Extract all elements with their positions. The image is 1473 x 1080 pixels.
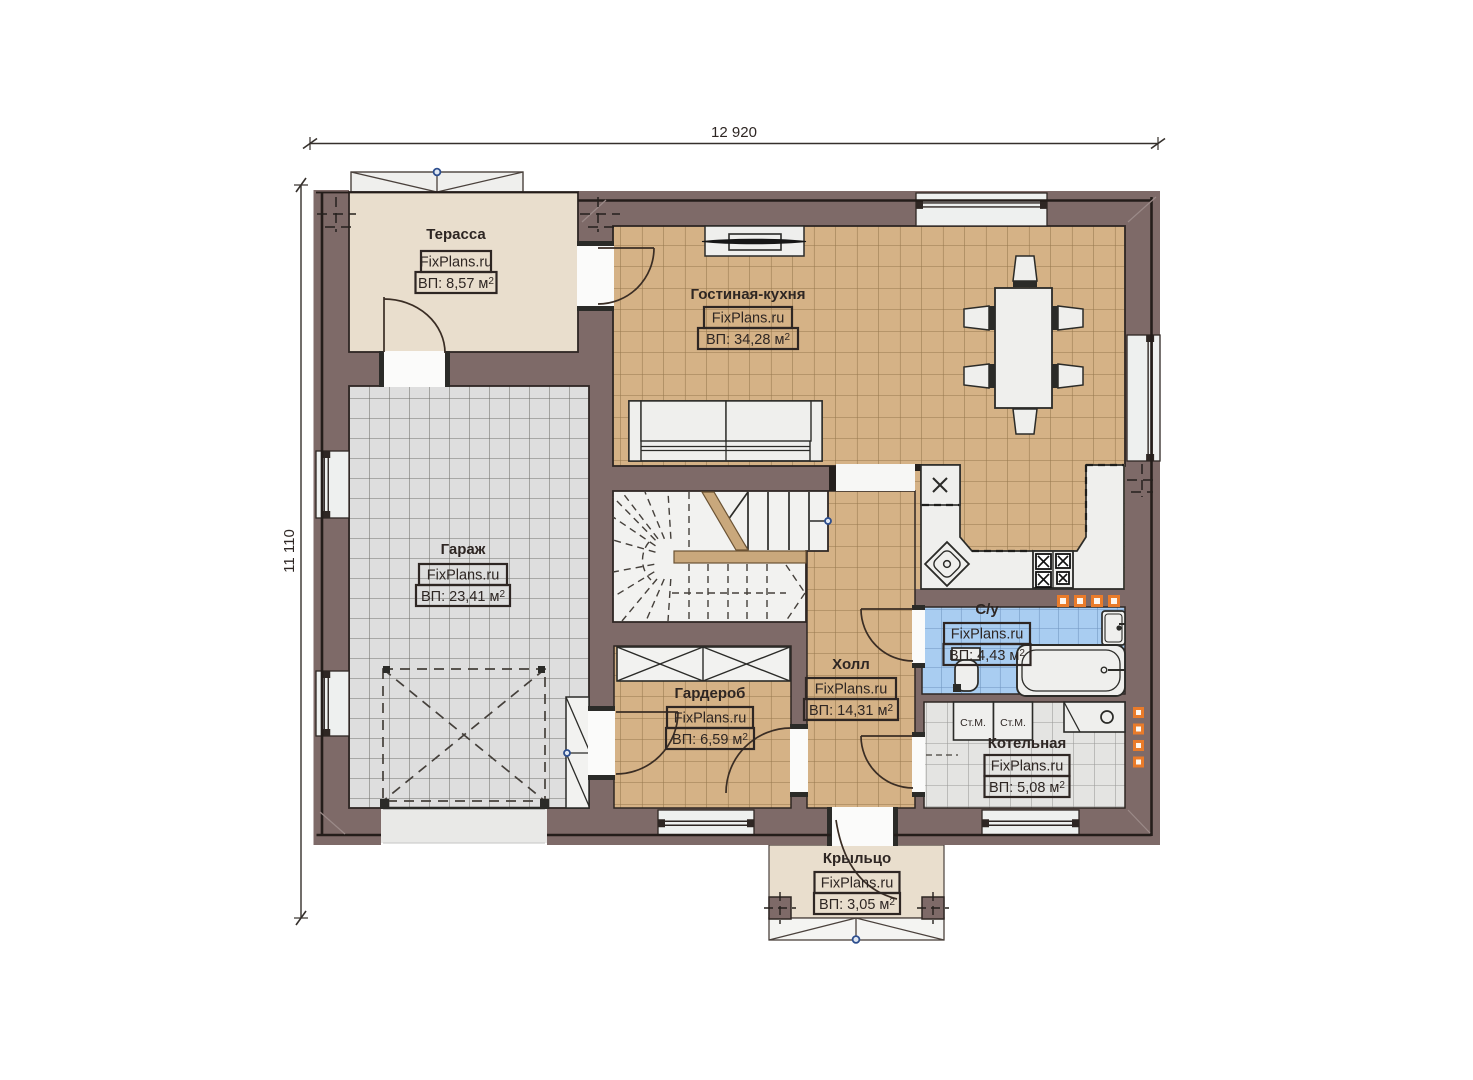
svg-text:FixPlans.ru: FixPlans.ru <box>674 711 747 727</box>
svg-text:Ст.М.: Ст.М. <box>1000 717 1026 729</box>
svg-text:FixPlans.ru: FixPlans.ru <box>712 311 785 327</box>
svg-text:ВП: 23,41 м2: ВП: 23,41 м2 <box>421 589 505 605</box>
svg-text:FixPlans.ru: FixPlans.ru <box>427 568 500 584</box>
svg-text:ВП: 6,59 м2: ВП: 6,59 м2 <box>672 732 748 748</box>
svg-text:Гараж: Гараж <box>441 541 486 558</box>
svg-text:11 110: 11 110 <box>281 529 298 573</box>
svg-text:Ст.М.: Ст.М. <box>960 717 986 729</box>
svg-text:ВП: 4,43 м2: ВП: 4,43 м2 <box>949 648 1025 664</box>
svg-text:ВП: 5,08 м2: ВП: 5,08 м2 <box>989 780 1065 796</box>
svg-text:С/у: С/у <box>975 601 999 618</box>
svg-text:12 920: 12 920 <box>711 124 757 141</box>
svg-text:FixPlans.ru: FixPlans.ru <box>815 682 888 698</box>
svg-text:ВП: 3,05 м2: ВП: 3,05 м2 <box>819 897 895 913</box>
svg-text:FixPlans.ru: FixPlans.ru <box>821 876 894 892</box>
svg-text:ВП: 8,57 м2: ВП: 8,57 м2 <box>418 276 494 292</box>
svg-text:FixPlans.ru: FixPlans.ru <box>991 759 1064 775</box>
svg-text:Гардероб: Гардероб <box>675 685 746 702</box>
svg-text:FixPlans.ru: FixPlans.ru <box>951 627 1024 643</box>
svg-text:Гостиная-кухня: Гостиная-кухня <box>691 286 806 303</box>
svg-text:Холл: Холл <box>832 656 870 673</box>
svg-text:ВП: 14,31 м2: ВП: 14,31 м2 <box>809 703 893 719</box>
svg-text:FixPlans.ru: FixPlans.ru <box>420 255 493 271</box>
svg-text:ВП: 34,28 м2: ВП: 34,28 м2 <box>706 332 790 348</box>
svg-text:Крыльцо: Крыльцо <box>823 850 891 867</box>
svg-text:Котельная: Котельная <box>988 735 1067 752</box>
svg-text:Терасса: Терасса <box>426 226 486 243</box>
